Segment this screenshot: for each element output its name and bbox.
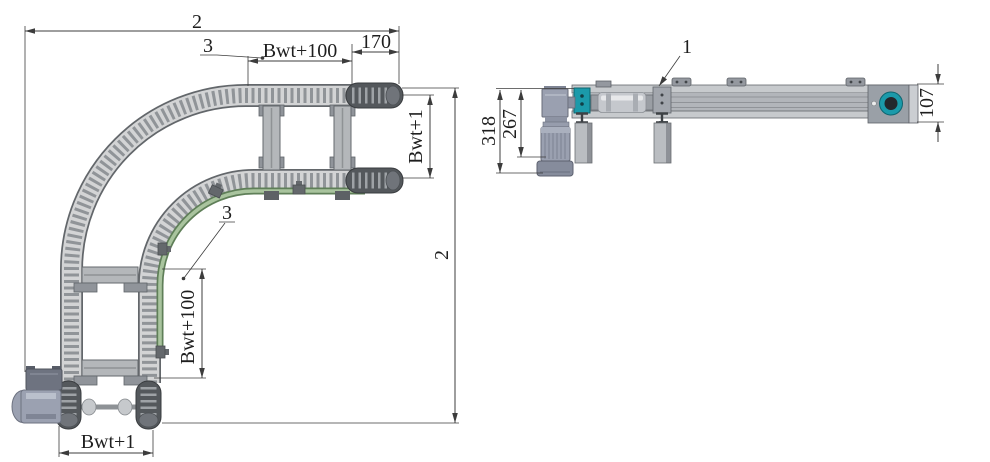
dim-chain-width-bottom-label: Bwt+1	[81, 431, 136, 453]
dim-overall-height-label: 2	[431, 250, 453, 260]
dim-height-motor: 267	[499, 90, 521, 157]
gearmotor-side	[537, 86, 575, 176]
dim-height-motor-label: 267	[499, 109, 521, 139]
dim-track-width-side-label: Bwt+100	[177, 290, 199, 365]
side-view-conveyor: 318 267 107 1	[478, 36, 944, 176]
outer-chain	[72, 96, 353, 384]
support-leg	[575, 114, 592, 164]
dim-chain-width-right-label: Bwt+1	[405, 109, 427, 164]
plan-view-curve-conveyor: 2 170 Bwt+100 3 Bwt+1 2 Bwt+100 3	[12, 11, 459, 457]
cross-brace	[74, 267, 147, 292]
dim-beam-height-label: 107	[916, 88, 938, 118]
gearmotor-plan	[12, 366, 62, 423]
head-plate-teal	[574, 88, 590, 113]
callout-3-top-label: 3	[203, 35, 213, 57]
beam-end-return-wheel	[868, 85, 918, 123]
dim-overall-height: 2	[431, 88, 455, 423]
dim-track-width-side: Bwt+100	[177, 269, 202, 378]
dim-overall-width: 2	[25, 11, 399, 33]
callout-3-side-label: 3	[222, 202, 232, 224]
drive-shaft	[78, 399, 138, 415]
dim-height-overall: 318	[478, 90, 500, 173]
dim-beam-height: 107	[916, 64, 938, 142]
callout-3-top: 3	[200, 35, 264, 60]
dim-chain-width-right: Bwt+1	[405, 95, 430, 178]
dim-end-offset-label: 170	[361, 31, 391, 53]
dim-end-offset: 170	[352, 31, 399, 53]
drive-roller	[586, 93, 653, 113]
dim-track-width-top-label: Bwt+100	[263, 40, 338, 62]
dim-overall-width-label: 2	[192, 11, 202, 33]
dim-height-overall-label: 318	[478, 116, 500, 146]
curve-conveyor-drawing: 2 170 Bwt+100 3 Bwt+1 2 Bwt+100 3	[0, 0, 990, 462]
chain-end-housing	[136, 381, 161, 429]
guide-rail-clip	[156, 346, 169, 358]
support-leg	[654, 114, 671, 164]
callout-1-label: 1	[682, 36, 692, 58]
cross-brace	[74, 360, 147, 385]
technical-drawing-page: 2 170 Bwt+100 3 Bwt+1 2 Bwt+100 3	[0, 0, 990, 462]
dim-chain-width-bottom: Bwt+1	[59, 431, 153, 453]
chain-end-housing	[346, 168, 403, 193]
bolt-icon	[872, 101, 877, 106]
chain-end-housing	[346, 83, 403, 108]
